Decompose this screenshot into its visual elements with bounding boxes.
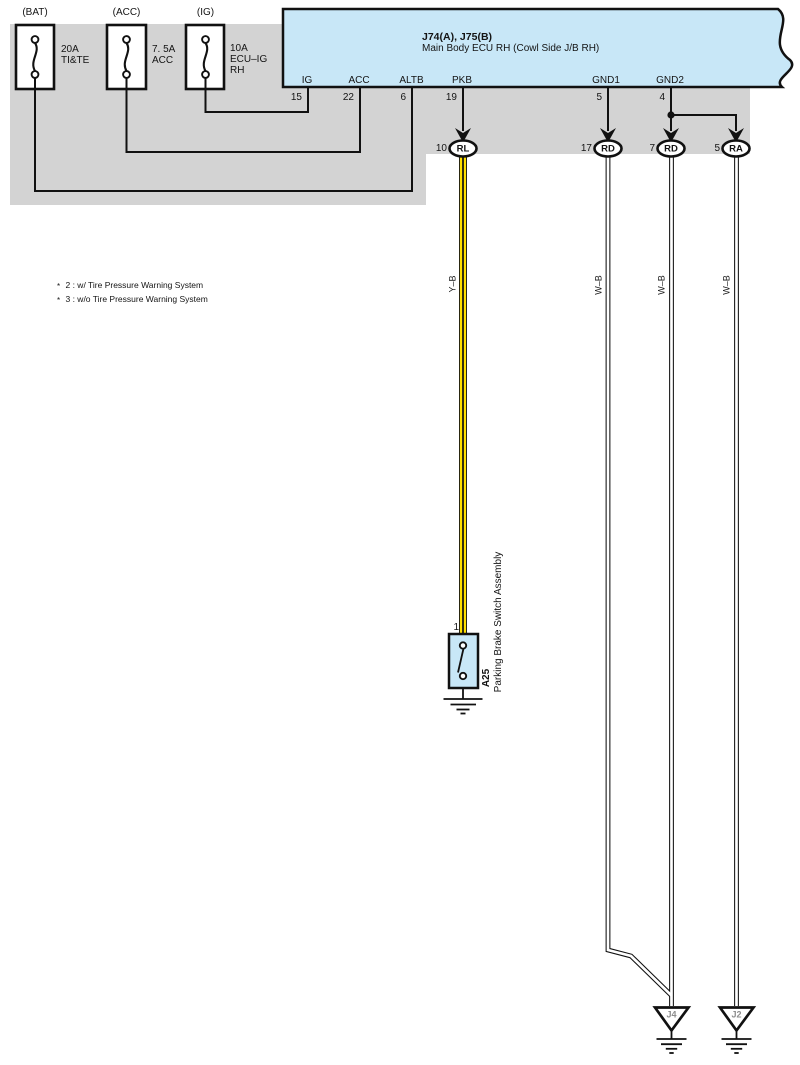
ecu-pin-label-pkb: PKB: [452, 76, 472, 86]
ecu-pin-label-gnd2: GND2: [656, 76, 684, 86]
fuse-ig-rating: 10A: [230, 44, 248, 54]
switch-code: A25: [482, 669, 492, 687]
ecu-pin-label-gnd1: GND1: [592, 76, 620, 86]
wire-label-yb: Y–B: [448, 275, 457, 292]
fuse-acc-rating: 7. 5A: [152, 45, 175, 55]
ecu-pin-number-acc: 22: [343, 93, 354, 103]
wire-label-wb-3: W–B: [723, 275, 732, 295]
fuse-acc-circuit: ACC: [152, 56, 173, 66]
ecu-pin-number-altb: 6: [400, 93, 406, 103]
connector-number-gnd1: 17: [581, 144, 592, 154]
fuse-bat-circuit: TI&TE: [61, 56, 89, 66]
switch-pin-number: 1: [453, 623, 459, 633]
connector-number-gnd2: 7: [649, 144, 655, 154]
fuse-acc-terminal-label: (ACC): [113, 8, 141, 18]
connector-code-gnd2: RD: [664, 144, 678, 154]
diagram-canvas: [0, 0, 800, 1065]
fuse-bat-terminal-label: (BAT): [22, 8, 47, 18]
connector-code-gnd1: RD: [601, 144, 615, 154]
junction-dot: [667, 111, 674, 118]
ecu-pin-label-ig: IG: [302, 76, 313, 86]
ecu-pin-number-gnd2: 4: [659, 93, 665, 103]
ecu-title: Main Body ECU RH (Cowl Side J/B RH): [422, 44, 599, 54]
note-marker-2: *: [57, 297, 60, 305]
note-text-1: 2 : w/ Tire Pressure Warning System: [66, 280, 204, 289]
wiring-diagram-page: (BAT) (ACC) (IG) 20A TI&TE 7. 5A ACC 10A…: [0, 0, 800, 1065]
ecu-pin-number-gnd1: 5: [596, 93, 602, 103]
fuse-ig-circuit2: RH: [230, 66, 244, 76]
connector-number-pkb: 10: [436, 144, 447, 154]
switch-name: Parking Brake Switch Assembly: [494, 552, 504, 693]
ecu-pin-label-altb: ALTB: [399, 76, 423, 86]
wire-label-wb-1: W–B: [595, 275, 604, 295]
connector-code-pkb: RL: [457, 144, 470, 154]
note-marker-1: *: [57, 283, 60, 291]
fuse-ig-terminal-label: (IG): [197, 8, 214, 18]
ecu-pin-number-pkb: 19: [446, 93, 457, 103]
connector-number-gnd2b: 5: [714, 144, 720, 154]
connector-code-gnd2b: RA: [729, 144, 743, 154]
ecu-pin-label-acc: ACC: [348, 76, 369, 86]
note-text-2: 3 : w/o Tire Pressure Warning System: [66, 294, 208, 303]
fuse-ig-circuit: ECU–IG: [230, 55, 267, 65]
fuse-bat-rating: 20A: [61, 45, 79, 55]
wire-label-wb-2: W–B: [658, 275, 667, 295]
ecu-pin-number-ig: 15: [291, 93, 302, 103]
switch-ground-icon: [444, 688, 483, 714]
ecu-code: J74(A), J75(B): [422, 31, 492, 42]
parking-brake-switch: [449, 634, 478, 688]
ground-label-j2: J2: [731, 1011, 741, 1020]
ground-label-j4: J4: [666, 1011, 676, 1020]
